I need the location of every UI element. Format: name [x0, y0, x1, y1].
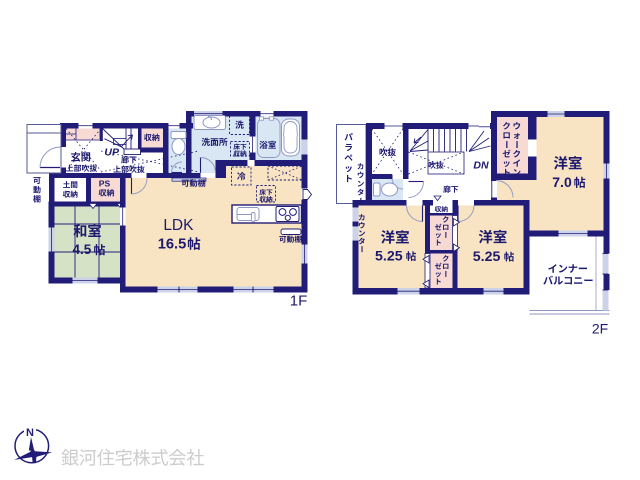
svg-text:2F: 2F: [592, 321, 608, 337]
svg-text:7.0: 7.0: [552, 174, 572, 190]
svg-text:16.5: 16.5: [158, 237, 187, 253]
svg-text:4.5: 4.5: [73, 242, 92, 257]
svg-text:LDK: LDK: [163, 217, 194, 234]
svg-text:5.25: 5.25: [473, 249, 501, 265]
svg-text:1F: 1F: [290, 292, 308, 309]
svg-text:DN: DN: [473, 159, 489, 171]
svg-text:N: N: [26, 427, 34, 439]
svg-text:5.25: 5.25: [375, 249, 403, 265]
svg-text:UP: UP: [104, 147, 120, 159]
svg-text:PS: PS: [99, 179, 111, 189]
